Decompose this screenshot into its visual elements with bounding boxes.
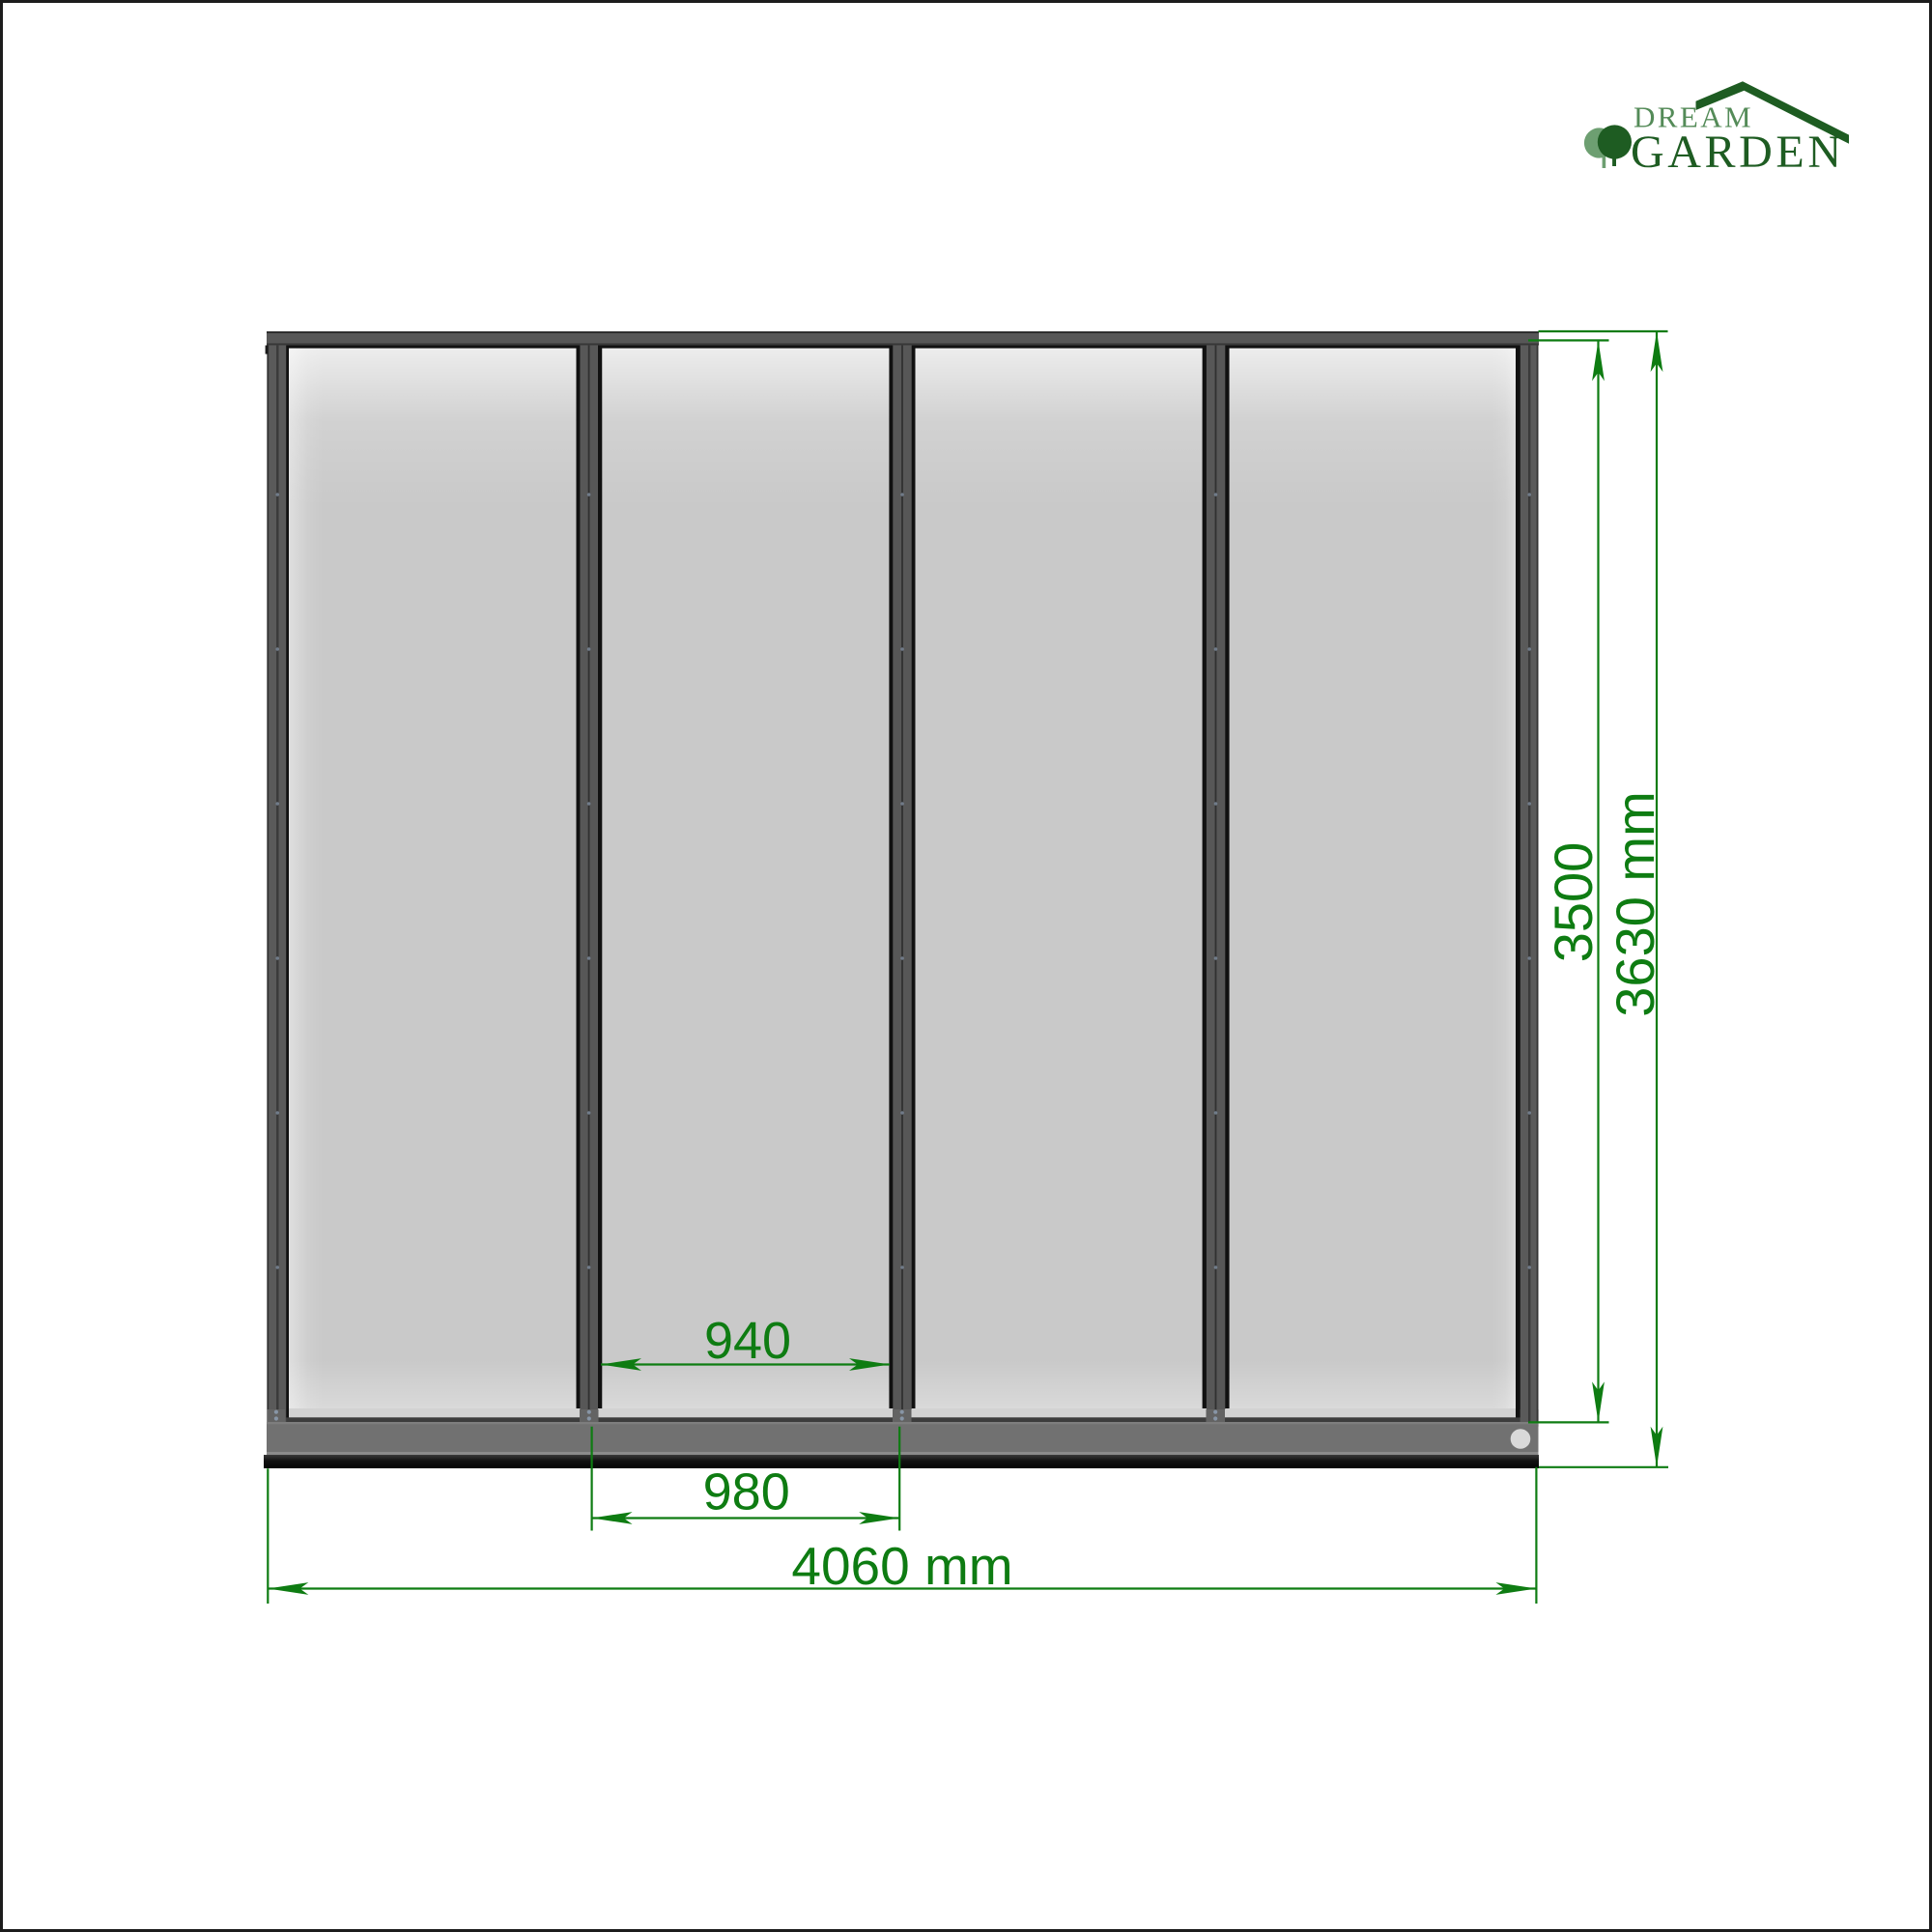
svg-text:3630 mm: 3630 mm (1605, 791, 1665, 1016)
svg-text:940: 940 (704, 1312, 791, 1370)
svg-text:GARDEN: GARDEN (1631, 127, 1845, 178)
svg-text:4060 mm: 4060 mm (791, 1536, 1012, 1596)
svg-text:980: 980 (703, 1463, 790, 1521)
svg-text:3500: 3500 (1543, 842, 1604, 963)
